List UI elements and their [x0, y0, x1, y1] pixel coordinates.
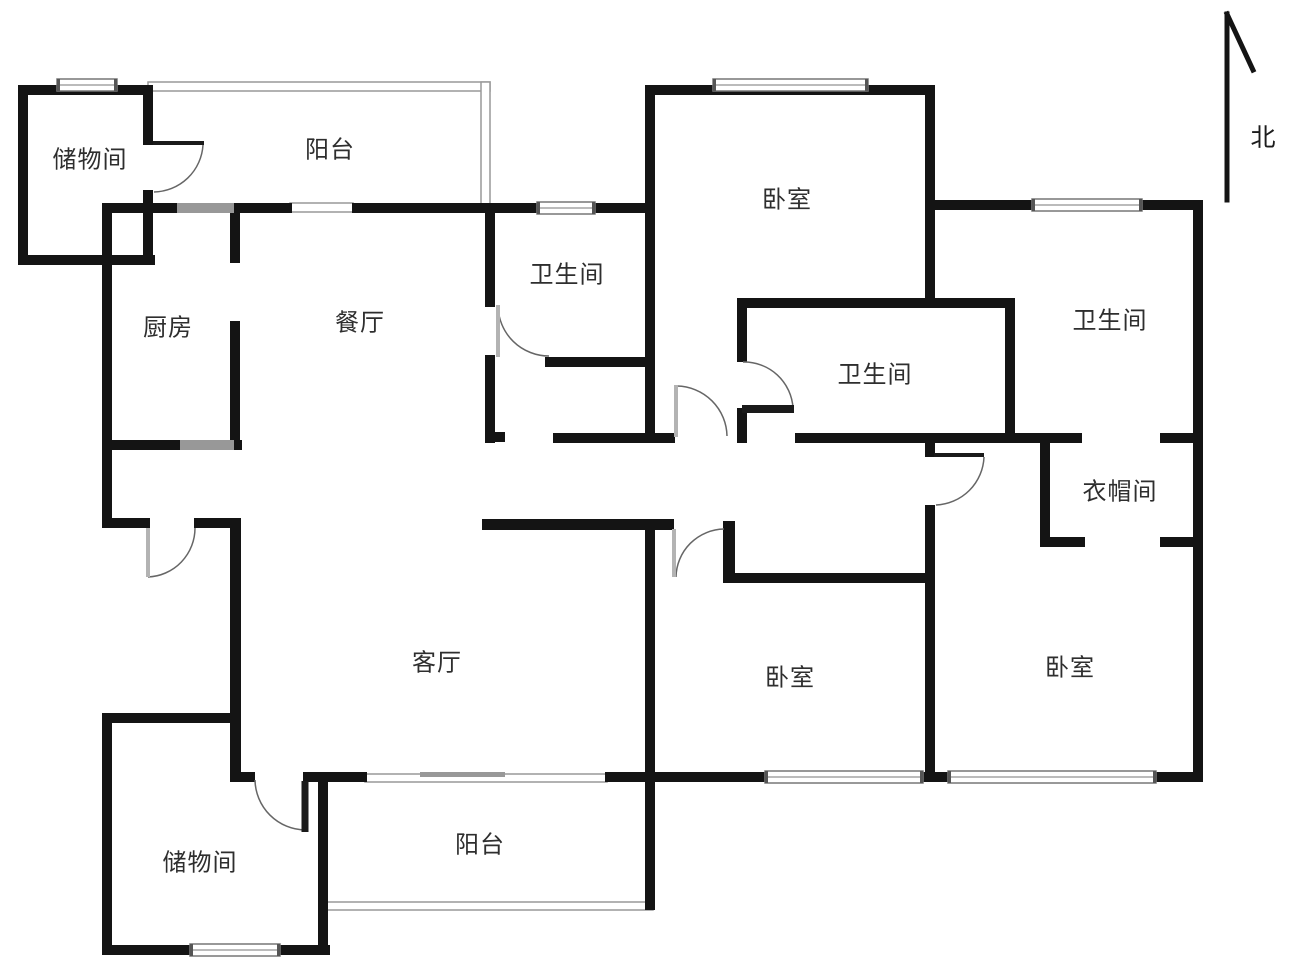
door-swing-arc: [148, 528, 195, 577]
balcony-rail: [323, 902, 653, 910]
door-swing-arc: [743, 362, 793, 408]
wall: [485, 355, 495, 443]
wall: [553, 433, 675, 443]
wall: [352, 203, 539, 213]
wall: [102, 518, 150, 528]
wall: [723, 521, 735, 583]
room-label-bath-north: 卫生间: [530, 255, 605, 290]
window-cap: [713, 79, 716, 91]
window-cap: [948, 771, 951, 783]
wall: [925, 437, 935, 457]
wall: [230, 518, 241, 782]
wall: [1005, 298, 1015, 443]
window-cap: [920, 771, 923, 783]
wall: [303, 772, 367, 782]
wall: [650, 772, 768, 782]
wall: [230, 321, 240, 450]
sliding-panel: [180, 440, 234, 450]
window-cap: [592, 202, 595, 214]
wall: [102, 713, 241, 723]
sliding-panel: [177, 203, 234, 213]
wall: [1160, 537, 1203, 547]
wall: [1015, 433, 1082, 443]
room-label-bath-east: 卫生间: [1073, 301, 1148, 336]
sliding-panel: [420, 772, 505, 777]
window-cap: [1032, 199, 1035, 211]
north-arrow: [1227, 14, 1253, 70]
window-cap: [277, 944, 280, 956]
room-label-kitchen: 厨房: [143, 308, 193, 343]
wall: [102, 713, 112, 955]
door-swing-arc: [677, 386, 727, 436]
window-cap: [865, 79, 868, 91]
balcony-rail: [290, 203, 353, 212]
wall: [485, 210, 495, 307]
room-label-dining: 餐厅: [335, 303, 385, 338]
wall: [143, 190, 153, 265]
wall: [18, 85, 28, 265]
wall: [723, 573, 935, 583]
window-cap: [114, 79, 117, 91]
wall: [1040, 537, 1085, 547]
window-cap: [1153, 771, 1156, 783]
wall: [935, 200, 1035, 210]
wall: [1160, 433, 1203, 443]
room-label-balcony-top: 阳台: [305, 130, 355, 165]
wall: [230, 772, 255, 782]
room-label-balcony-bottom: 阳台: [455, 825, 505, 860]
wall: [485, 432, 505, 442]
room-label-living: 客厅: [412, 643, 462, 678]
balcony-rail: [481, 82, 490, 210]
room-label-bath-mid: 卫生间: [838, 355, 913, 390]
door-swing-arc: [498, 306, 549, 356]
wall: [545, 357, 655, 367]
wall: [925, 505, 935, 782]
wall: [143, 85, 153, 145]
wall: [1150, 772, 1203, 782]
window-cap: [190, 944, 193, 956]
room-label-bedroom-north: 卧室: [762, 180, 812, 215]
wall: [318, 772, 328, 955]
wall: [1040, 443, 1050, 547]
wall: [737, 298, 747, 362]
window-cap: [537, 202, 540, 214]
wall: [925, 85, 935, 308]
north-label: 北: [1250, 118, 1275, 154]
window-cap: [765, 771, 768, 783]
door-swing-arc: [255, 780, 305, 830]
balcony-rail: [148, 82, 490, 91]
wall: [232, 203, 292, 213]
wall: [737, 298, 1015, 308]
room-label-bedroom-se: 卧室: [1045, 648, 1095, 683]
wall: [645, 521, 655, 910]
room-label-bedroom-sw: 卧室: [765, 658, 815, 693]
window-cap: [1139, 199, 1142, 211]
room-label-storage-top: 储物间: [53, 140, 128, 175]
door-swing-arc: [676, 529, 724, 577]
wall: [1193, 200, 1203, 782]
wall: [795, 433, 1015, 443]
wall: [102, 203, 112, 528]
door-swing-arc: [154, 145, 203, 192]
door-swing-arc: [936, 457, 984, 505]
window-cap: [57, 79, 60, 91]
wall: [18, 255, 155, 265]
wall: [645, 85, 655, 443]
wall: [102, 203, 180, 213]
wall: [737, 408, 747, 443]
floorplan: 储物间 阳台 卧室 卫生间 卫生间 厨房 餐厅 卫生间 衣帽间 客厅 卧室 卧室…: [0, 0, 1303, 971]
room-label-storage-bottom: 储物间: [163, 843, 238, 878]
room-label-closet: 衣帽间: [1083, 472, 1158, 507]
